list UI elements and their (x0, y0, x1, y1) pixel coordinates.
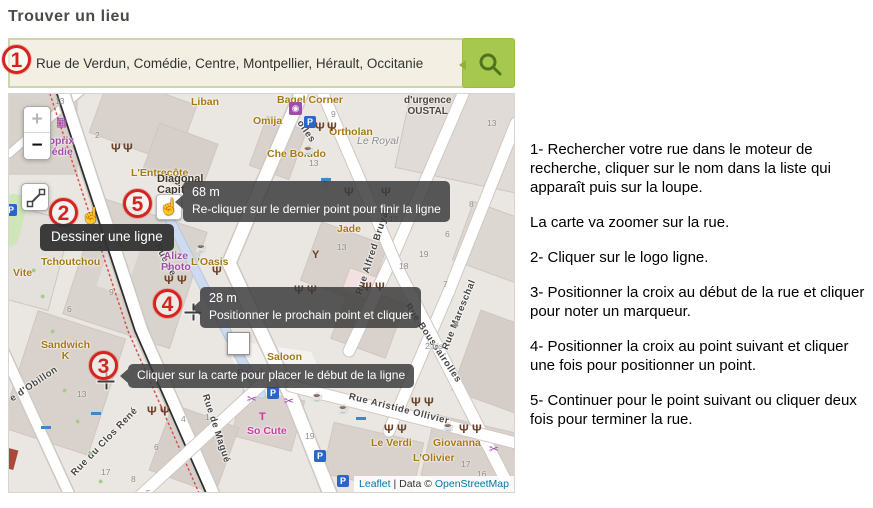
bed-icon: ▬ (41, 422, 51, 432)
restaurant-icon: Ψ (177, 274, 187, 286)
tree-icon: ● (88, 449, 93, 458)
poi-label: L'Oasis (191, 257, 229, 268)
poi-label: Jade (337, 224, 361, 235)
restaurant-icon: Ψ (315, 121, 325, 133)
poi-label: Giovanna (433, 438, 481, 449)
house-number: 2 bis (425, 341, 443, 351)
cafe-icon: ☕ (311, 393, 323, 403)
poi-label: Liban (191, 97, 219, 108)
house-number: 9 (109, 287, 114, 297)
hand-cursor: ☝ (156, 194, 182, 220)
restaurant-icon: Ψ (212, 265, 222, 277)
map-attribution: Leaflet | Data © OpenStreetMap (354, 476, 514, 492)
house-number: 19 (305, 431, 314, 441)
cafe-icon: ☕ (302, 146, 314, 156)
hand-cursor: ☝ (81, 206, 101, 226)
house-number: 13 (55, 96, 64, 106)
poi-label: Sandwich K (41, 340, 90, 362)
scissors-icon: ✂ (489, 443, 499, 455)
tree-icon: ● (40, 292, 45, 301)
instruction-step-1: 1- Rechercher votre rue dans le moteur d… (530, 140, 868, 197)
house-number: 8 (131, 474, 136, 484)
poi-label: Le Verdi (371, 438, 412, 449)
zoom-out-button[interactable]: − (24, 133, 50, 159)
bar-icon: Y (231, 311, 238, 322)
house-number: 8 (469, 199, 474, 209)
restaurant-icon: Ψ (327, 121, 337, 133)
poi-label: Tchoutchou (41, 257, 100, 268)
house-number: 6 (154, 442, 159, 452)
restaurant-icon: Ψ (307, 284, 317, 296)
restaurant-icon: Ψ (472, 423, 482, 435)
house-number: 5 (146, 488, 151, 493)
house-number: 13 (337, 242, 346, 252)
parking-icon: P (314, 450, 326, 462)
tshirt-icon: T (259, 412, 266, 423)
instruction-step-3: 3- Positionner la croix au début de la r… (530, 283, 868, 321)
restaurant-icon: Ψ (294, 284, 304, 296)
restaurant-icon: Ψ (397, 423, 407, 435)
house-number: 6 (67, 304, 72, 314)
house-number: 13 (77, 389, 86, 399)
bed-icon: ▬ (356, 413, 366, 423)
restaurant-icon: Ψ (384, 423, 394, 435)
crosshair-cursor (98, 373, 115, 390)
house-number: 7 (443, 279, 448, 289)
cart-icon: ▦ (56, 116, 67, 128)
line-start-marker (227, 332, 250, 355)
leaflet-link[interactable]: Leaflet (359, 478, 391, 490)
tree-icon: ● (75, 417, 80, 426)
crosshair-cursor (185, 304, 202, 321)
restaurant-icon: Ψ (164, 274, 174, 286)
parking-icon: P (267, 387, 279, 399)
poi-label: Alize Photo (161, 251, 191, 273)
bar-icon: Y (312, 250, 319, 261)
house-number: 1 (205, 412, 210, 422)
attribution-text: | Data © (391, 478, 435, 490)
tree-icon: ● (62, 386, 67, 395)
instruction-step-2: 2- Cliquer sur le logo ligne. (530, 248, 868, 267)
restaurant-icon: Ψ (147, 405, 157, 417)
house-number: 19 (419, 249, 428, 259)
restaurant-icon: Ψ (344, 186, 354, 198)
poi-label: Omija (253, 116, 282, 127)
restaurant-icon: Ψ (459, 423, 469, 435)
tree-icon: ● (98, 477, 103, 486)
search-button[interactable] (462, 38, 515, 88)
poi-label: L'Olivier (413, 453, 455, 464)
restaurant-icon: Ψ (362, 281, 372, 293)
page: Trouver un lieu (0, 0, 873, 508)
bed-icon: ▬ (321, 174, 331, 184)
instructions-panel: 1- Rechercher votre rue dans le moteur d… (530, 140, 868, 445)
page-title: Trouver un lieu (8, 8, 130, 26)
poi-label: Proxi (237, 368, 263, 379)
poi-label: d'urgence OUSTAL (404, 95, 451, 117)
restaurant-icon: Ψ (411, 396, 421, 408)
draw-line-button[interactable] (21, 183, 49, 211)
instruction-note: La carte va zoomer sur la rue. (530, 213, 868, 232)
restaurant-icon: Ψ (424, 396, 434, 408)
zoom-in-button[interactable]: + (24, 107, 50, 133)
poi-label: Diagonal Capit (157, 174, 203, 196)
tree-icon: ● (50, 327, 55, 336)
cafe-icon: ☕ (442, 423, 454, 433)
search-input[interactable] (8, 38, 464, 88)
restaurant-icon: Ψ (111, 142, 121, 154)
house-number: 9 (331, 109, 336, 119)
instruction-step-5: 5- Continuer pour le point suivant ou cl… (530, 391, 868, 429)
parking-icon: P (8, 204, 17, 216)
restaurant-icon: Ψ (123, 142, 133, 154)
bed-icon: ▬ (91, 408, 101, 418)
house-number: 13 (309, 158, 318, 168)
instruction-step-4: 4- Positionner la croix au point suivant… (530, 337, 868, 375)
parking-icon: P (304, 116, 316, 128)
tree-icon: ● (31, 266, 36, 275)
parking-icon: P (337, 475, 349, 487)
scissors-icon: ✂ (284, 395, 294, 407)
poi-label: Bagel Corner (277, 95, 343, 106)
house-number: 3 (454, 319, 459, 329)
house-number: 18 (399, 261, 408, 271)
restaurant-icon: Ψ (375, 281, 385, 293)
map-canvas[interactable]: Rue Alfred BruyasRue MareschalRue Boussa… (8, 93, 515, 493)
scissors-icon: ✂ (247, 393, 257, 405)
house-number: 2 (95, 130, 100, 140)
cafe-icon: ☕ (337, 405, 349, 415)
poi-label: Vite (13, 268, 32, 279)
restaurant-icon: Ψ (160, 405, 170, 417)
cafe-icon: ☕ (195, 244, 207, 254)
zoom-control: + − (23, 106, 51, 160)
laundry-icon: ◉ (289, 102, 302, 115)
house-number: 17 (461, 459, 470, 469)
openstreetmap-link[interactable]: OpenStreetMap (435, 478, 509, 490)
house-number: 13 (487, 118, 496, 128)
poi-label: Saloon (267, 352, 302, 363)
poi-label: So Cute (247, 426, 287, 437)
house-number: 6 (445, 229, 450, 239)
house-number: 17 (389, 214, 398, 224)
search-bar (8, 38, 515, 88)
house-number: 4 (181, 414, 186, 424)
poi-label: Le Royal (357, 136, 398, 147)
restaurant-icon: Ψ (381, 186, 391, 198)
